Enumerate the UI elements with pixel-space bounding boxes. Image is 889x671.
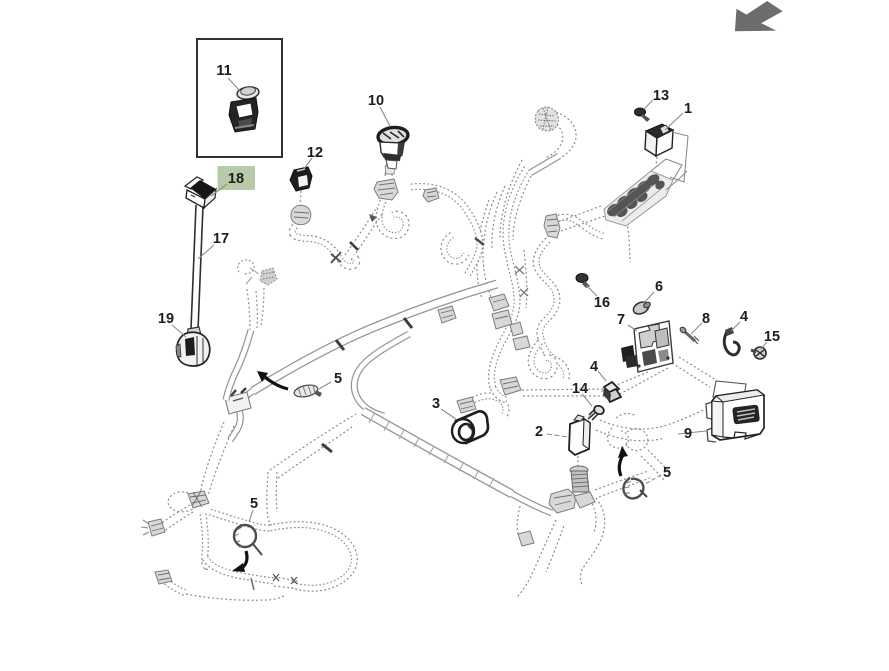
svg-text:7: 7 — [617, 312, 625, 328]
svg-text:5: 5 — [334, 371, 342, 387]
svg-text:1: 1 — [684, 101, 692, 117]
svg-text:2: 2 — [535, 424, 543, 440]
svg-text:4: 4 — [740, 309, 748, 325]
svg-text:17: 17 — [213, 231, 229, 247]
svg-text:9: 9 — [684, 426, 692, 442]
svg-text:12: 12 — [307, 145, 323, 161]
svg-text:18: 18 — [228, 171, 244, 187]
svg-text:4: 4 — [590, 359, 598, 375]
svg-text:11: 11 — [216, 63, 231, 79]
svg-text:19: 19 — [158, 311, 174, 327]
svg-text:15: 15 — [764, 329, 780, 345]
svg-text:10: 10 — [368, 93, 384, 109]
svg-text:13: 13 — [653, 88, 669, 104]
svg-text:8: 8 — [702, 311, 710, 327]
svg-text:16: 16 — [594, 295, 610, 311]
svg-text:5: 5 — [663, 465, 671, 481]
svg-text:6: 6 — [655, 279, 663, 295]
svg-text:14: 14 — [572, 381, 588, 397]
svg-text:3: 3 — [432, 396, 440, 412]
svg-text:5: 5 — [250, 496, 258, 512]
